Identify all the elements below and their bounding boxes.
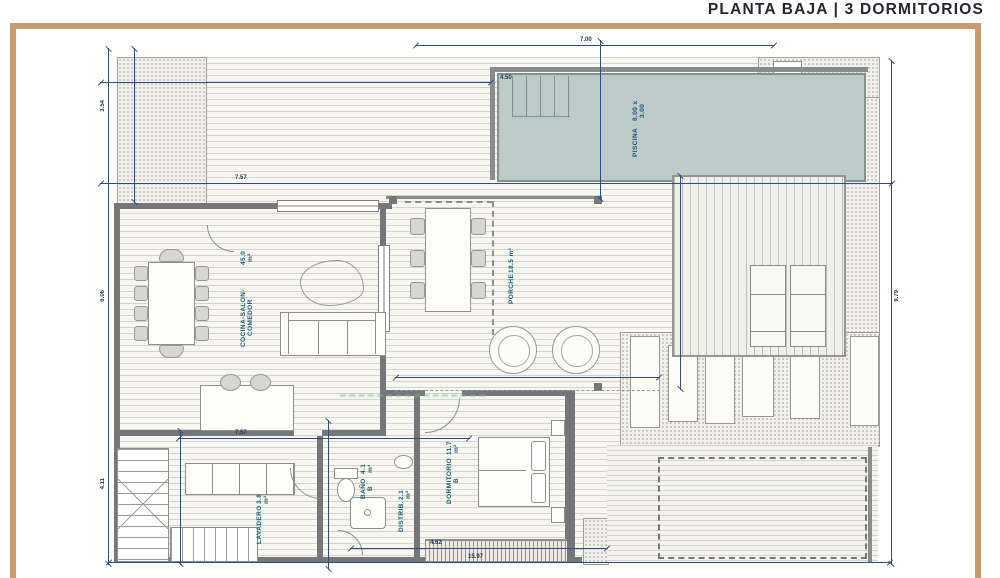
- wall: [414, 396, 420, 563]
- sliding-glass-door: [425, 539, 567, 563]
- chair: [471, 282, 486, 299]
- window: [277, 200, 379, 212]
- dimension-label: 7.57: [235, 175, 247, 181]
- dimension-line: [680, 175, 681, 390]
- staircase: [117, 448, 169, 562]
- bar-stool: [250, 374, 271, 391]
- bar-stool: [220, 374, 241, 391]
- dimension-line: [328, 420, 329, 570]
- chair: [195, 286, 209, 301]
- dimension-line: [134, 48, 135, 203]
- porch-edge: [386, 196, 600, 199]
- pool-top-wall: [490, 67, 868, 72]
- porch-boundary: [492, 201, 494, 335]
- room-label-hall: DISTRIB. 2.1 m²: [398, 492, 412, 532]
- chair: [134, 306, 148, 321]
- sun-lounger: [790, 265, 826, 347]
- frame-top: [10, 23, 981, 29]
- terrace-pergola-outline: [658, 457, 867, 559]
- rug: [300, 260, 364, 306]
- bed-split-line: [478, 470, 526, 471]
- dimension-line: [178, 438, 470, 439]
- chair: [471, 218, 486, 235]
- dimension-line: [891, 60, 892, 565]
- dimension-label: 15.97: [468, 554, 483, 560]
- stair-cross: [118, 479, 168, 529]
- room-label-porch: PORCHE 18.5 m²: [508, 238, 515, 304]
- sofa: [280, 312, 386, 356]
- pool-left-wall: [490, 67, 495, 180]
- paver: [630, 336, 660, 428]
- chair: [134, 326, 148, 341]
- sofa-seam: [318, 320, 319, 354]
- outdoor-table: [425, 208, 471, 312]
- shower-drain: [364, 509, 371, 516]
- dimension-line: [100, 183, 893, 184]
- room-label-pool: PISCINA 8.00 x 3.00: [632, 95, 646, 157]
- sink: [394, 455, 413, 469]
- lounge-chair: [489, 326, 537, 374]
- chair: [134, 286, 148, 301]
- dimension-line: [108, 48, 109, 565]
- chair: [159, 249, 184, 262]
- sofa-armrest: [288, 312, 289, 354]
- dimension-line: [180, 430, 181, 565]
- chair: [195, 266, 209, 281]
- nightstand: [551, 507, 565, 523]
- dimension-line: [395, 377, 660, 378]
- porch-pillar: [389, 196, 397, 204]
- sofa-armrest: [375, 312, 376, 354]
- frame-right: [975, 23, 981, 578]
- chair: [195, 326, 209, 341]
- plan-title: PLANTA BAJA | 3 DORMITORIOS: [708, 1, 984, 19]
- chair: [134, 266, 148, 281]
- dimension-line: [108, 562, 891, 563]
- chair: [410, 218, 425, 235]
- section-line: [395, 390, 660, 391]
- steps: [170, 527, 258, 562]
- pool-steps: [512, 76, 570, 117]
- paver: [850, 336, 879, 426]
- pillow: [531, 473, 546, 503]
- chair: [471, 250, 486, 267]
- dimension-label: 6.06: [100, 290, 106, 302]
- dimension-line: [350, 548, 608, 549]
- dimension-label: 4.50: [500, 75, 512, 81]
- gravel-patch-bottom: [583, 518, 609, 565]
- floor-plan-sheet: PLANTA BAJA | 3 DORMITORIOS: [0, 0, 1000, 578]
- dimension-label: 9.79: [894, 290, 900, 302]
- nightstand: [551, 420, 565, 436]
- dimension-label: 4.11: [100, 478, 106, 489]
- dimension-label: 7.00: [580, 37, 592, 43]
- wall: [317, 436, 323, 563]
- porch-boundary: [405, 201, 493, 203]
- kitchen-counter: [185, 463, 295, 495]
- dimension-label: 3.54: [100, 100, 106, 112]
- room-label-laundry: LAVADERO 3.8 m²: [256, 498, 270, 544]
- room-label-bathroom: BAÑO B 4.1 m²: [360, 460, 374, 500]
- room-label-bedroom: DORMITORIO B 11.7 m²: [446, 440, 460, 504]
- pillow: [531, 441, 546, 471]
- chair: [410, 250, 425, 267]
- lounge-chair: [552, 326, 600, 374]
- watermark-smudge: [340, 394, 485, 397]
- sofa-seam: [347, 320, 348, 354]
- wall: [565, 390, 575, 563]
- chair: [410, 282, 425, 299]
- dining-table: [148, 262, 195, 345]
- kitchen-island: [200, 385, 294, 431]
- dimension-label: 4.62: [430, 540, 442, 546]
- room-label-living: COCINA-SALON-COMEDOR 45.0 m²: [240, 245, 254, 365]
- sun-lounger: [750, 265, 786, 347]
- dimension-line: [415, 45, 775, 46]
- sofa-back: [288, 320, 375, 321]
- terrace-edge-wall: [868, 447, 872, 563]
- dimension-line: [100, 82, 492, 83]
- dimension-line: [600, 40, 601, 200]
- wall: [322, 430, 386, 436]
- chair: [195, 306, 209, 321]
- dimension-label: 7.57: [235, 430, 247, 436]
- frame-left: [10, 23, 16, 578]
